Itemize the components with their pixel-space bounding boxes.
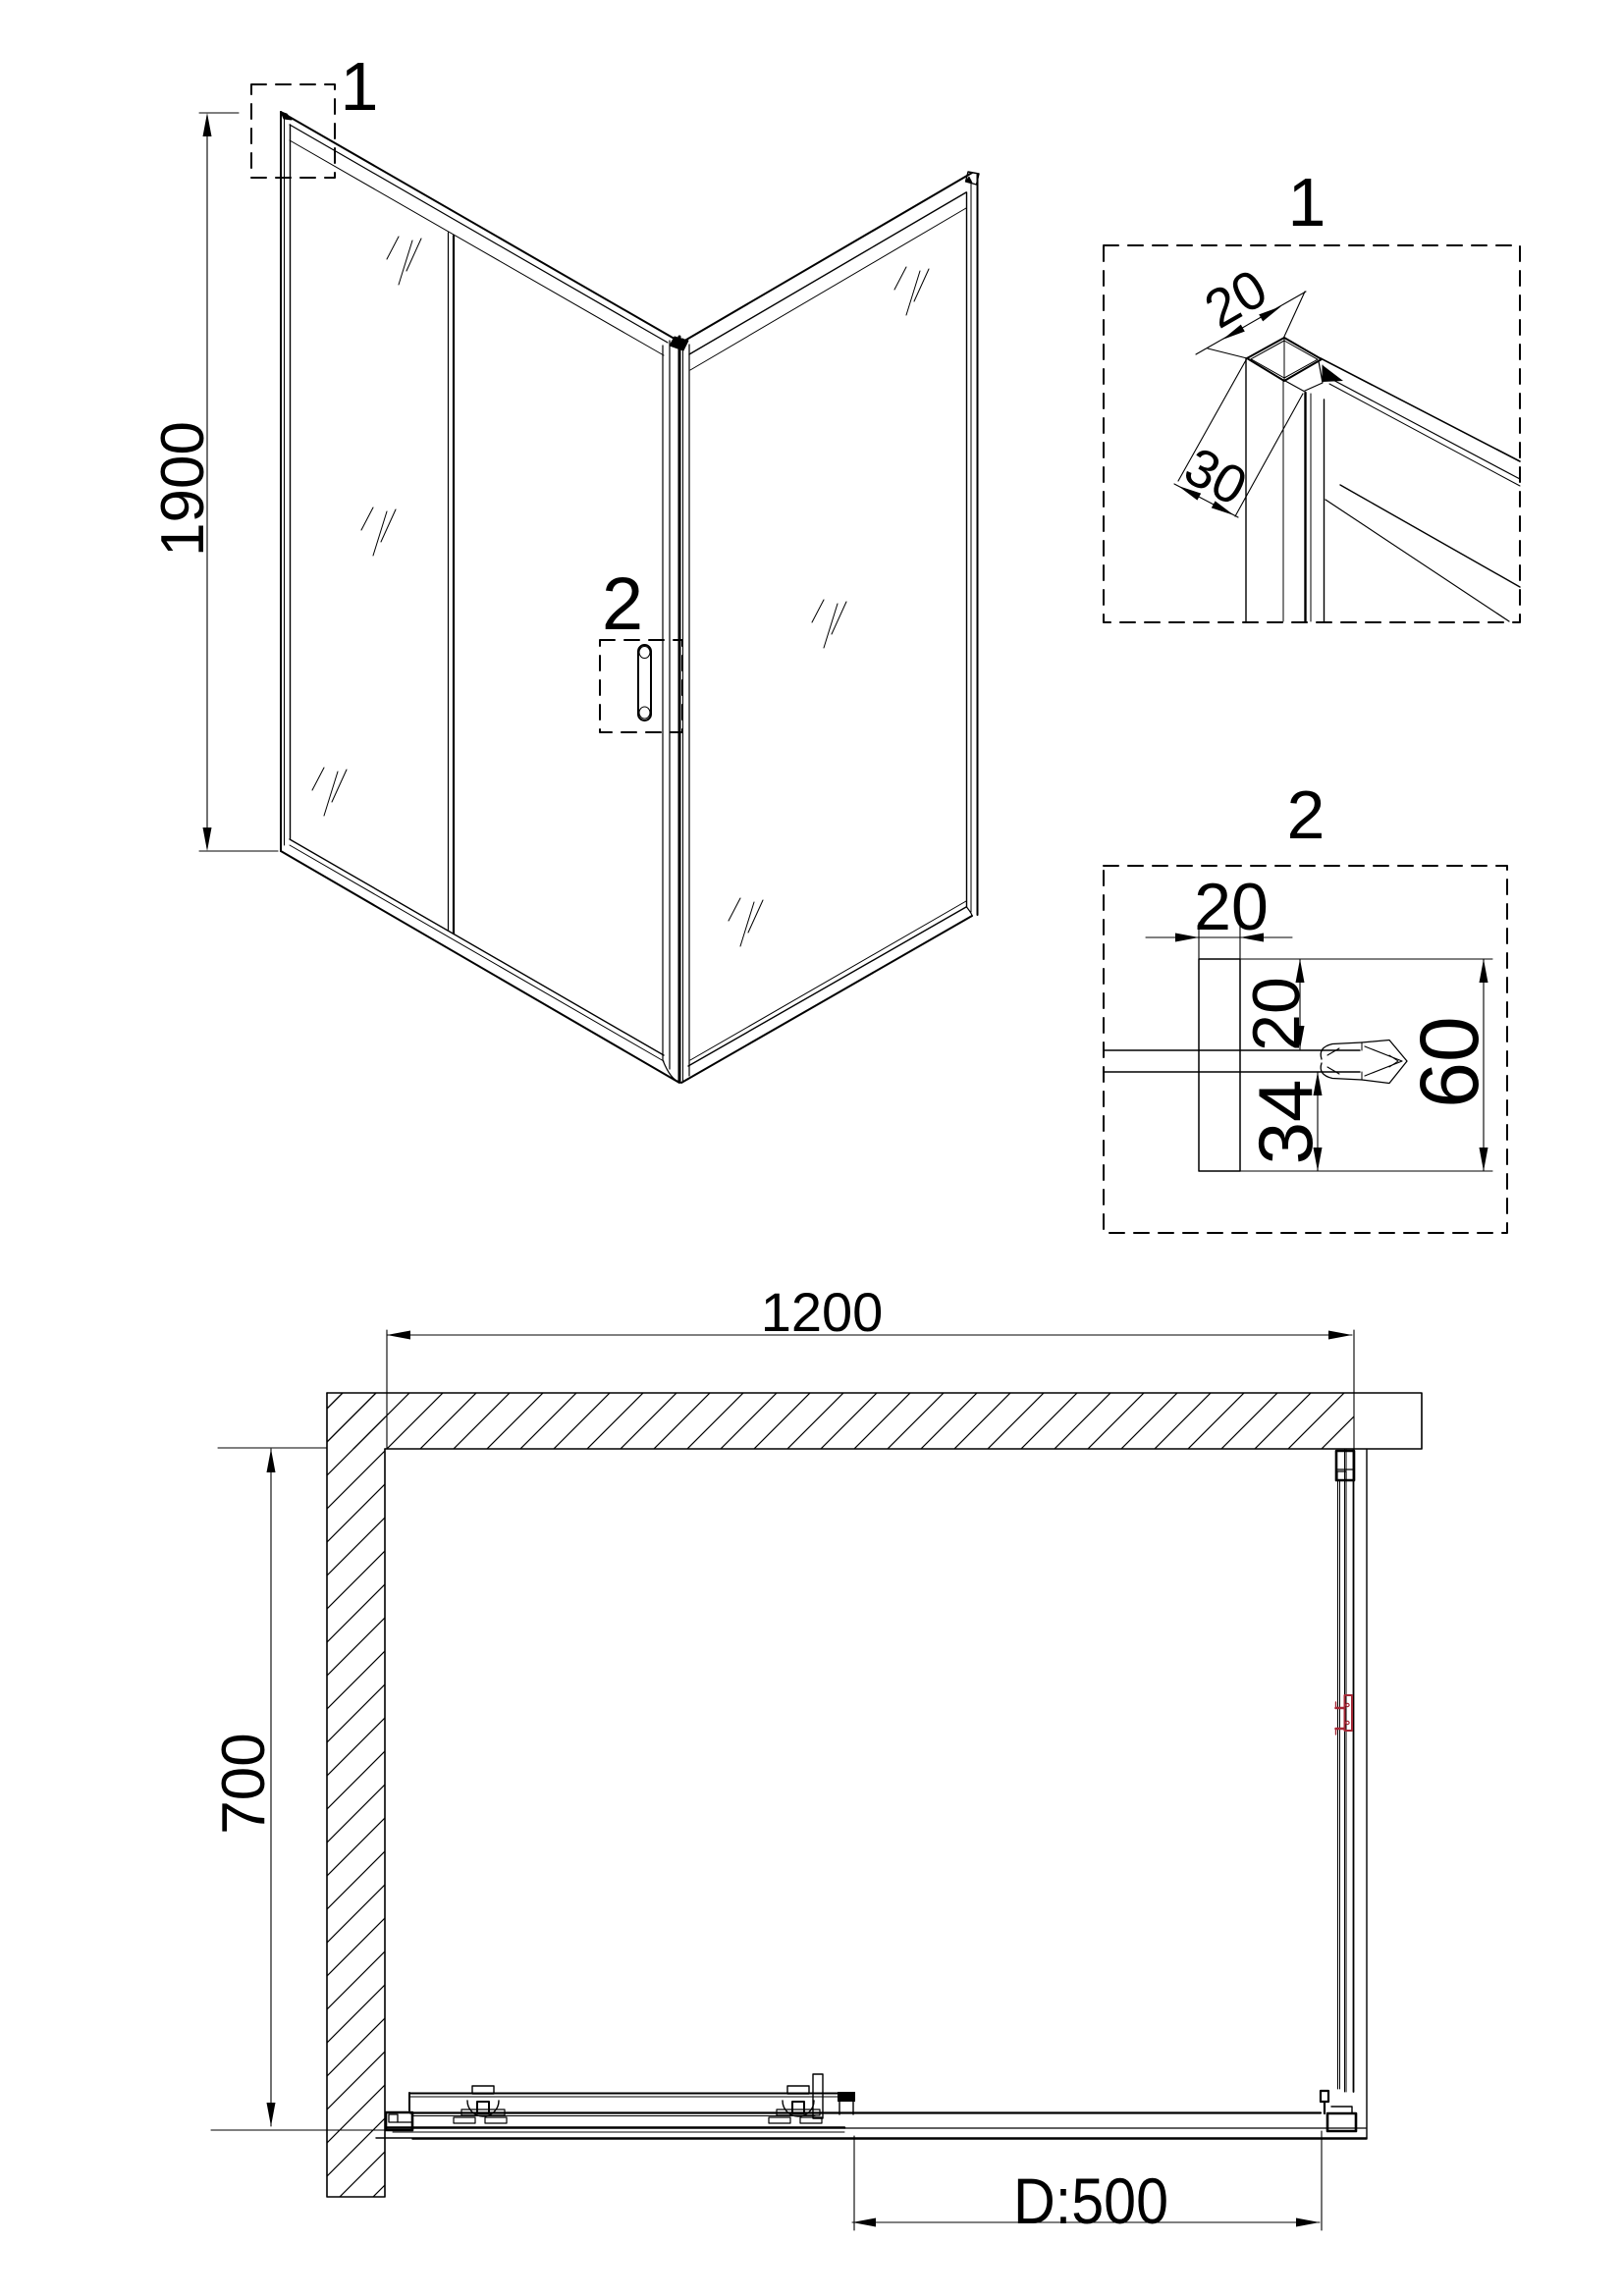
svg-text:20: 20	[1194, 870, 1269, 944]
svg-text:1200: 1200	[761, 1281, 884, 1343]
svg-text:D:500: D:500	[1013, 2164, 1168, 2237]
svg-text:2: 2	[602, 562, 643, 646]
svg-text:1900: 1900	[149, 421, 217, 557]
svg-text:34: 34	[1242, 1080, 1328, 1165]
svg-text:1: 1	[1288, 164, 1326, 240]
svg-text:20: 20	[1239, 977, 1314, 1051]
svg-text:60: 60	[1403, 1016, 1495, 1107]
svg-text:1: 1	[341, 48, 379, 125]
svg-text:2: 2	[1287, 776, 1325, 853]
svg-text:700: 700	[210, 1733, 278, 1834]
